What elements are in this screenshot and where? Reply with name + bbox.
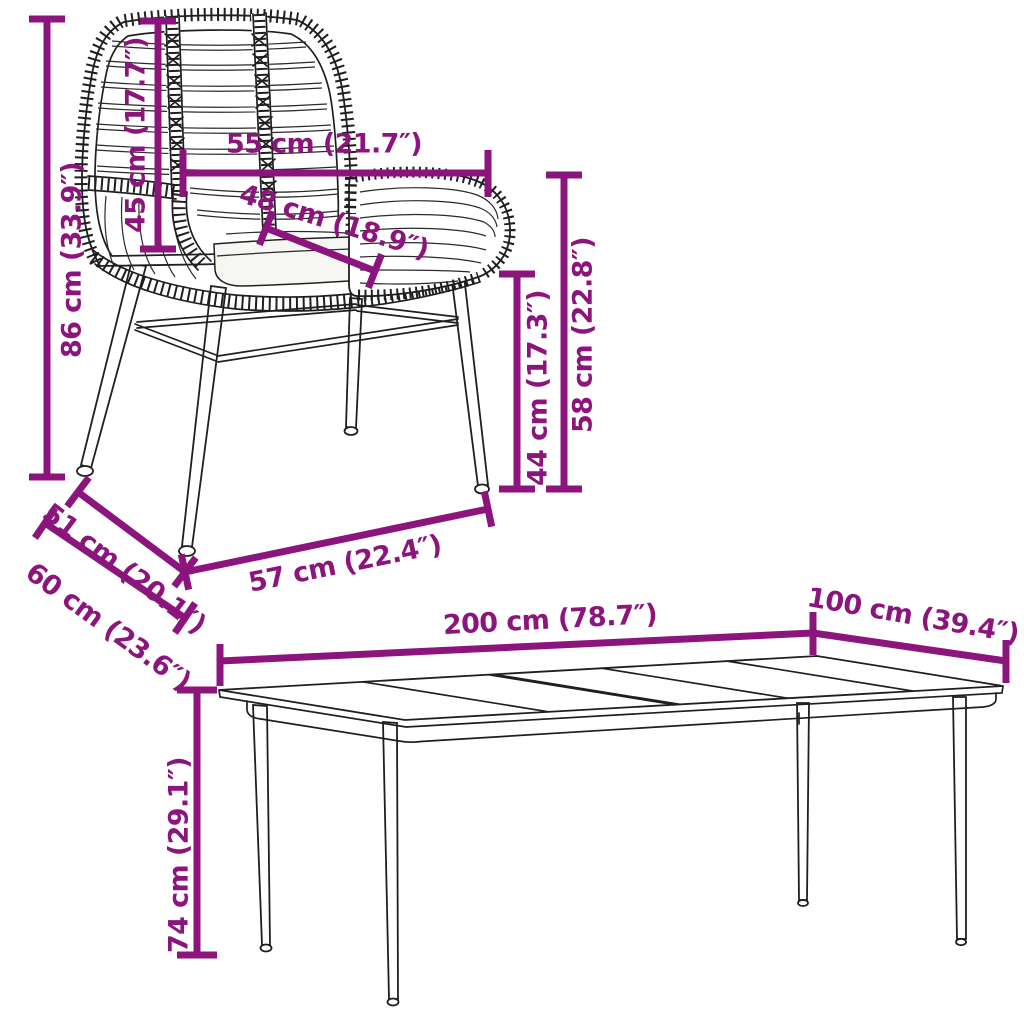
product-dimension-diagram: 86 cm (33.9″) 45 cm (17.7″) 55 cm (21.7″… bbox=[0, 0, 1024, 1024]
chair-total-depth-label: 60 cm (23.6″) bbox=[20, 557, 197, 697]
chair-total-width-label: 55 cm (21.7″) bbox=[226, 129, 422, 160]
chair-armrest-height-label: 58 cm (22.8″) bbox=[568, 237, 599, 433]
chair-total-height-label: 86 cm (33.9″) bbox=[57, 162, 88, 358]
table-length-label: 200 cm (78.7″) bbox=[442, 599, 658, 641]
chair-stretcher-frame bbox=[135, 304, 458, 362]
chair-seat-height-label: 44 cm (17.3″) bbox=[523, 290, 554, 486]
table-legs bbox=[253, 697, 966, 1006]
table-top bbox=[219, 656, 1003, 742]
table-height-label: 74 cm (29.1″) bbox=[164, 757, 195, 953]
table-illustration bbox=[219, 656, 1003, 1006]
chair-backrest-height-label: 45 cm (17.7″) bbox=[121, 37, 152, 233]
